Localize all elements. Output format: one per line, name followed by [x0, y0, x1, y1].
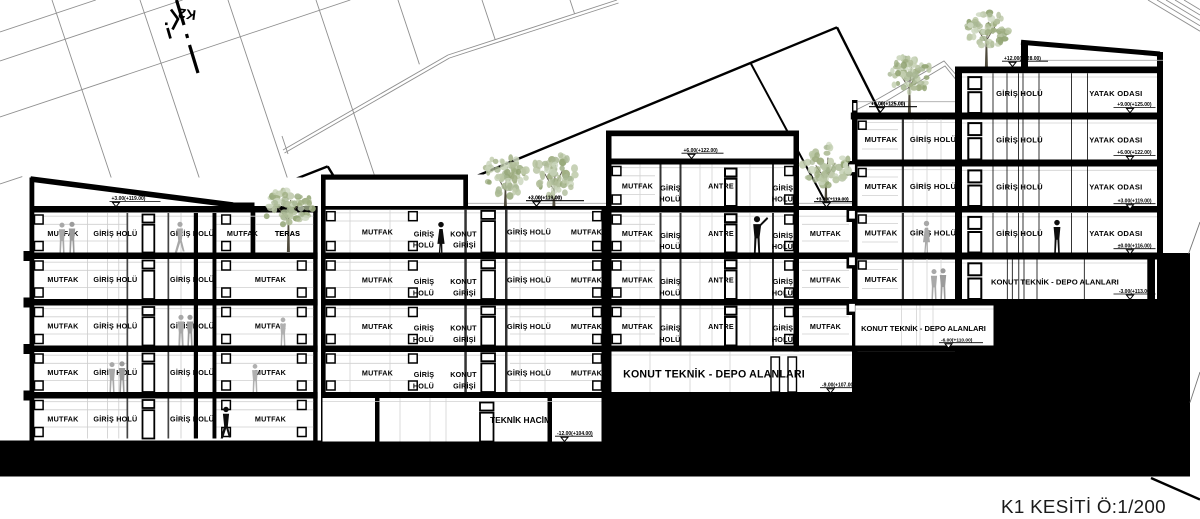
svg-text:MUTFAK: MUTFAK — [622, 229, 654, 238]
svg-text:GİRİŞ HOLÜ: GİRİŞ HOLÜ — [170, 415, 214, 424]
svg-text:HOLÜ: HOLÜ — [772, 195, 793, 204]
svg-text:MUTFAK: MUTFAK — [865, 182, 898, 191]
svg-text:ANTRE: ANTRE — [708, 229, 734, 238]
svg-text:HOLÜ: HOLÜ — [659, 288, 680, 297]
svg-text:GİRİŞ HOLÜ: GİRİŞ HOLÜ — [507, 322, 551, 331]
svg-text:MUTFAK: MUTFAK — [865, 135, 898, 144]
svg-text:GİRİŞ: GİRİŞ — [773, 183, 794, 192]
svg-text:MUTFAK: MUTFAK — [865, 275, 898, 284]
svg-text:KONUT TEKNİK - DEPO ALANLARI: KONUT TEKNİK - DEPO ALANLARI — [861, 324, 986, 333]
svg-text:GİRİŞİ: GİRİŞİ — [453, 335, 476, 344]
svg-text:KONUT: KONUT — [450, 229, 477, 238]
svg-text:GİRİŞ HOLÜ: GİRİŞ HOLÜ — [93, 275, 137, 284]
svg-text:MUTFAK: MUTFAK — [255, 275, 287, 284]
svg-text:MUTFAK: MUTFAK — [571, 322, 603, 331]
svg-text:MUTFAK: MUTFAK — [571, 368, 603, 377]
svg-text:HOLÜ: HOLÜ — [659, 195, 680, 204]
svg-text:HOLÜ: HOLÜ — [659, 335, 680, 344]
svg-text:GİRİŞ: GİRİŞ — [414, 370, 435, 379]
svg-text:GİRİŞ HOLÜ: GİRİŞ HOLÜ — [93, 229, 137, 238]
svg-text:GİRİŞ: GİRİŞ — [660, 324, 681, 333]
svg-text:GİRİŞ HOLÜ: GİRİŞ HOLÜ — [170, 368, 214, 377]
svg-text:GİRİŞ: GİRİŞ — [773, 231, 794, 240]
svg-text:MUTFAK: MUTFAK — [255, 368, 287, 377]
svg-text:GİRİŞ: GİRİŞ — [773, 324, 794, 333]
svg-text:MUTFAK: MUTFAK — [255, 415, 287, 424]
svg-text:GİRİŞ: GİRİŞ — [660, 183, 681, 192]
svg-text:GİRİŞİ: GİRİŞİ — [453, 240, 476, 249]
svg-text:MUTFAK: MUTFAK — [362, 228, 394, 237]
svg-text:MUTFAK: MUTFAK — [47, 275, 79, 284]
svg-text:GİRİŞ: GİRİŞ — [660, 277, 681, 286]
svg-text:MUTFAK: MUTFAK — [810, 322, 842, 331]
svg-text:YATAK ODASI: YATAK ODASI — [1089, 89, 1142, 98]
svg-text:HOLÜ: HOLÜ — [413, 381, 434, 390]
svg-text:GİRİŞ HOLÜ: GİRİŞ HOLÜ — [910, 229, 957, 238]
svg-text:GİRİŞ HOLÜ: GİRİŞ HOLÜ — [996, 135, 1043, 144]
svg-text:GİRİŞİ: GİRİŞİ — [453, 381, 476, 390]
svg-text:GİRİŞ HOLÜ: GİRİŞ HOLÜ — [910, 182, 957, 191]
svg-text:KONUT: KONUT — [450, 324, 477, 333]
svg-text:HOLÜ: HOLÜ — [413, 335, 434, 344]
svg-text:K1 KESİTİ Ö:1/200: K1 KESİTİ Ö:1/200 — [1001, 496, 1166, 517]
svg-text:MUTFAK: MUTFAK — [571, 228, 603, 237]
svg-text:GİRİŞ HOLÜ: GİRİŞ HOLÜ — [507, 368, 551, 377]
svg-text:MUTFAK: MUTFAK — [571, 275, 603, 284]
svg-text:MUTFAK: MUTFAK — [622, 182, 654, 191]
svg-text:YATAK ODASI: YATAK ODASI — [1089, 182, 1142, 191]
svg-text:KONUT TEKNİK - DEPO ALANLARI: KONUT TEKNİK - DEPO ALANLARI — [991, 278, 1119, 287]
svg-text:GİRİŞ: GİRİŞ — [414, 324, 435, 333]
svg-text:GİRİŞ: GİRİŞ — [414, 277, 435, 286]
svg-text:HOLÜ: HOLÜ — [413, 240, 434, 249]
svg-text:GİRİŞ HOLÜ: GİRİŞ HOLÜ — [996, 182, 1043, 191]
svg-text:MUTFAK: MUTFAK — [227, 229, 259, 238]
svg-text:HOLÜ: HOLÜ — [772, 335, 793, 344]
svg-text:GİRİŞ HOLÜ: GİRİŞ HOLÜ — [170, 275, 214, 284]
svg-text:GİRİŞİ: GİRİŞİ — [453, 288, 476, 297]
svg-text:MUTFAK: MUTFAK — [622, 322, 654, 331]
svg-text:GİRİŞ HOLÜ: GİRİŞ HOLÜ — [910, 135, 957, 144]
svg-text:MUTFAK: MUTFAK — [362, 322, 394, 331]
svg-text:KONUT TEKNİK - DEPO ALANLARI: KONUT TEKNİK - DEPO ALANLARI — [623, 368, 805, 381]
svg-text:ANTRE: ANTRE — [708, 182, 734, 191]
svg-text:GİRİŞ HOLÜ: GİRİŞ HOLÜ — [507, 228, 551, 237]
svg-text:ANTRE: ANTRE — [708, 275, 734, 284]
svg-text:MUTFAK: MUTFAK — [362, 275, 394, 284]
svg-text:HOLÜ: HOLÜ — [659, 242, 680, 251]
svg-text:GİRİŞ HOLÜ: GİRİŞ HOLÜ — [996, 229, 1043, 238]
svg-text:KONUT: KONUT — [450, 277, 477, 286]
svg-text:HOLÜ: HOLÜ — [413, 288, 434, 297]
svg-text:HOLÜ: HOLÜ — [772, 288, 793, 297]
svg-text:MUTFAK: MUTFAK — [810, 229, 842, 238]
svg-text:K2: K2 — [177, 5, 197, 23]
svg-text:MUTFAK: MUTFAK — [47, 368, 79, 377]
svg-text:GİRİŞ HOLÜ: GİRİŞ HOLÜ — [996, 89, 1043, 98]
svg-text:YATAK ODASI: YATAK ODASI — [1089, 135, 1142, 144]
svg-text:GİRİŞ: GİRİŞ — [773, 277, 794, 286]
svg-text:GİRİŞ HOLÜ: GİRİŞ HOLÜ — [507, 275, 551, 284]
svg-text:MUTFAK: MUTFAK — [810, 275, 842, 284]
svg-text:KONUT: KONUT — [450, 370, 477, 379]
svg-text:GİRİŞ HOLÜ: GİRİŞ HOLÜ — [93, 368, 137, 377]
svg-text:GİRİŞ HOLÜ: GİRİŞ HOLÜ — [170, 229, 214, 238]
svg-text:HOLÜ: HOLÜ — [772, 242, 793, 251]
svg-text:MUTFAK: MUTFAK — [362, 368, 394, 377]
svg-text:GİRİŞ HOLÜ: GİRİŞ HOLÜ — [93, 415, 137, 424]
svg-text:YATAK ODASI: YATAK ODASI — [1089, 229, 1142, 238]
svg-text:GİRİŞ: GİRİŞ — [414, 229, 435, 238]
svg-text:TEKNİK HACİM: TEKNİK HACİM — [490, 415, 551, 425]
svg-text:GİRİŞ HOLÜ: GİRİŞ HOLÜ — [93, 322, 137, 331]
svg-text:GİRİŞ: GİRİŞ — [660, 231, 681, 240]
svg-text:MUTFAK: MUTFAK — [622, 275, 654, 284]
svg-text:MUTFAK: MUTFAK — [865, 229, 898, 238]
svg-text:MUTFAK: MUTFAK — [47, 415, 79, 424]
svg-text:MUTFAK: MUTFAK — [47, 322, 79, 331]
svg-text:ANTRE: ANTRE — [708, 322, 734, 331]
svg-text:TERAS: TERAS — [275, 229, 300, 238]
